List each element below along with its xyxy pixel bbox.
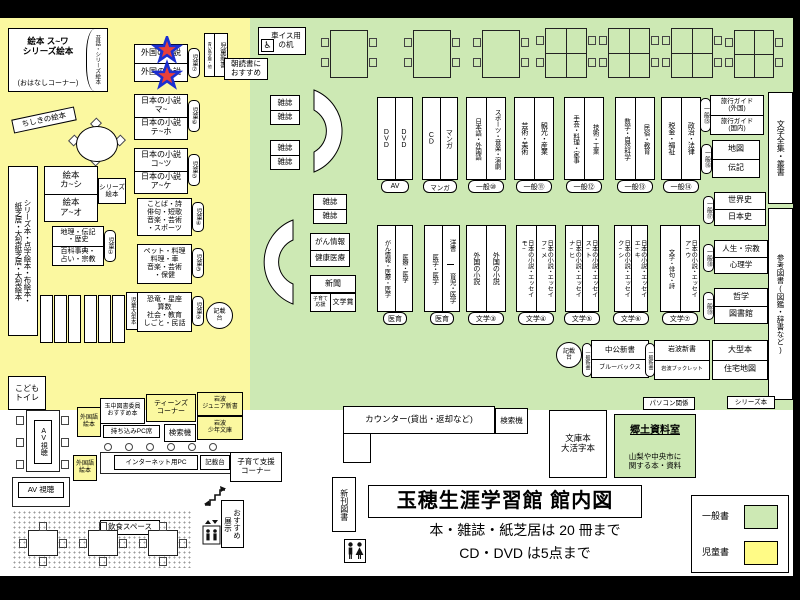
badge-general-17: 一般⑰ <box>703 196 714 224</box>
shelf-col: DVD <box>378 98 395 179</box>
search-kiosk-kids: 検索機 <box>164 424 196 442</box>
magazine-cell: 雑誌 <box>314 209 346 224</box>
shelf-general-13: 数学・自然科学 民俗・教育 <box>615 97 655 180</box>
jp-novels-te-ho: 日本の小説 テ~ホ <box>135 117 187 140</box>
shelf-col: 数学・自然科学 <box>616 98 635 179</box>
shelf-general-12: 手芸・料理・家事 技術・工業 <box>564 97 604 180</box>
kids-badge-4: 児童④ <box>192 202 204 232</box>
shelf-col: マンガ <box>440 98 458 179</box>
chair <box>662 36 670 45</box>
chair <box>16 438 24 447</box>
kids-pet-shelf: ペット・料理 料理・車 音楽・芸術 ・保健 <box>137 244 192 284</box>
shelf-badge-medical-1: 医育 <box>383 312 407 325</box>
stool <box>167 443 175 451</box>
map-cell: 地図 <box>713 141 759 159</box>
chair <box>139 539 147 548</box>
writing-stand-kids: 記載 台 <box>206 302 233 329</box>
health-med-cell: 健康医療 <box>311 250 349 267</box>
bunko-large-print-box: 文庫本 大活字本 <box>549 410 607 478</box>
foreign-picture-books-1: 外国語 絵本 <box>77 407 101 437</box>
shelf-col: 日本の小説・エッセイ ス~ト <box>582 226 599 311</box>
badge-general-19: 一般⑲ <box>703 292 714 320</box>
writing-stand-sw: 記載台 <box>200 455 230 470</box>
shelf-badge-manga: マンガ <box>423 180 457 193</box>
badge-general-16: 一般⑯ <box>701 144 712 174</box>
iwanami-shinsho-cell: 岩波新書 <box>655 341 709 360</box>
shelf-col: 文学・俳句・詩 <box>661 226 680 311</box>
bluebacks-cell: ブルーバックス <box>592 359 648 378</box>
shelf-literature-6: 日本の小説・エッセイ ク~シ 日本の小説・エッセイ エ~キ <box>614 225 648 312</box>
picture-books-ka-shi: 絵本 カ~シ <box>45 167 97 194</box>
chair <box>536 36 544 45</box>
kids-jp-novels-shelf-1: 日本の小説 マ~ 日本の小説 テ~ホ <box>134 94 188 140</box>
shelf-col: 日本の小説・エッセイ モ~ <box>517 226 536 311</box>
badge-general-shinsho-2: 一般新書 <box>582 343 592 377</box>
chair <box>61 416 69 425</box>
kids-dino-shelf: 恐竜・星座 算数 社会・教育 しごと・民話 <box>137 292 192 332</box>
shelf-col: 観光・産業 <box>534 98 554 179</box>
shelf-col: 日本の小説・エッセイ フ~メ <box>536 226 556 311</box>
badge-general-18: 一般⑱ <box>703 244 714 272</box>
geography-shelf: 地理・伝記 ・歴史 百科事典・ 占い・宗教 <box>52 226 104 266</box>
chair <box>369 58 377 67</box>
reading-table-quad <box>608 28 650 78</box>
chair <box>473 58 481 67</box>
world-history-cell: 世界史 <box>715 193 765 209</box>
shelf-av-dvd: DVD DVD <box>377 97 413 180</box>
badge-general-15: 一般⑮ <box>700 98 711 132</box>
jp-novels-a-ke: 日本の小説 ア~ケ <box>135 171 187 194</box>
biography-cell: 伝記 <box>713 159 759 178</box>
shelf-col: 政治・法律 <box>681 98 701 179</box>
magazine-rack-2: 雑誌 雑誌 <box>270 140 300 170</box>
shelf-cd-manga: CD マンガ <box>422 97 458 180</box>
kosodate-bungakusho-rack: 子育て 応援 文学賞 <box>310 293 356 312</box>
chair <box>159 522 167 531</box>
shelf-badge-general-11: 一般⑪ <box>516 180 552 193</box>
chair <box>651 36 659 45</box>
shelf-general-11: 芸術・美術 観光・産業 <box>514 97 554 180</box>
cancer-info-cell: がん情報 <box>311 234 349 250</box>
chair <box>775 58 783 67</box>
chair <box>59 539 67 548</box>
shelf-col: 日本の小説・エッセイ エ~キ <box>631 226 648 311</box>
chair <box>369 38 377 47</box>
chair <box>79 539 87 548</box>
chair <box>775 38 783 47</box>
local-materials-room: 郷土資料室 山梨や中央市に 関する本・資料 <box>614 414 696 478</box>
empty-shelf <box>98 295 111 343</box>
wheelchair-desk-label: 車イス用 の机 <box>271 32 301 49</box>
service-counter-return <box>343 433 371 463</box>
chair <box>452 58 460 67</box>
kids-kotoba-shelf: ことば・詩 俳句・短歌 音楽・芸術 ・スポーツ <box>137 198 192 236</box>
magazine-cell: 雑誌 <box>271 141 299 155</box>
dining-table <box>28 530 58 556</box>
iwanami-shinsho-shelf: 岩波新書 岩波ブックレット <box>654 340 710 380</box>
ohanashi-title: 絵本 ス~ワ シリーズ絵本 <box>11 37 85 57</box>
chair <box>536 58 544 67</box>
shelf-badge-medical-2: 医育 <box>430 312 454 325</box>
shelf-general-10: 日本語・外国語 スポーツ・音楽・演劇 <box>466 97 506 180</box>
new-books-stand: 新刊図書 <box>332 477 356 532</box>
shelf-col: 民俗・教育 <box>635 98 655 179</box>
iwanami-shonen-box: 岩波 少年文庫 <box>197 416 243 440</box>
kids-toilet-box: こども トイレ <box>8 376 46 410</box>
series-books-label: シリーズ本 <box>727 396 775 409</box>
legend-children-label: 児童書 <box>702 547 729 557</box>
iwanami-booklet-cell: 岩波ブックレット <box>655 360 709 380</box>
writing-stand-general: 記載 台 <box>556 342 582 368</box>
shelf-col: 日本の小説・エッセイ ア~ウ <box>680 226 700 311</box>
kids-badge-1: 児童① <box>104 230 116 262</box>
chair <box>61 438 69 447</box>
wheelchair-icon: ♿ <box>261 39 274 52</box>
library-science-cell: 図書館 <box>715 306 767 324</box>
series-ehon-tag: シリーズ 絵本 <box>98 178 126 204</box>
reading-table-quad <box>734 30 774 78</box>
chair <box>19 539 27 548</box>
local-room-title: 郷土資料室 <box>615 415 695 446</box>
badge-general-shinsho-1: 一般新書 <box>645 343 655 377</box>
reading-table-quad <box>671 28 713 78</box>
chair <box>725 58 733 67</box>
shelf-medical-2: 医学・医学 洋書 育児・医学 <box>424 225 460 312</box>
curved-counter-lower <box>252 218 296 306</box>
newspaper-rack: 新聞 <box>310 275 356 293</box>
pc-related-label: パソコン関係 <box>643 397 695 410</box>
stool <box>146 443 154 451</box>
service-counter: カウンター(貸出・返却など) <box>343 406 495 434</box>
dining-table <box>148 530 178 556</box>
shelf-badge-literature-6: 文学⑥ <box>613 312 649 325</box>
shelf-col: がん情報・医療・医学 <box>378 226 395 311</box>
restroom-icon <box>344 539 366 563</box>
chuko-shinsho-shelf: 中公新書 ブルーバックス <box>591 340 649 378</box>
large-books-cell: 大型本 <box>713 341 767 360</box>
reading-table <box>413 30 451 78</box>
shelf-col: CD <box>423 98 440 179</box>
travel-foreign-cell: 旅行ガイド (外国) <box>711 96 763 115</box>
ohanashi-side-label: 昔話・シリーズ絵本 <box>86 29 107 91</box>
legend-general-swatch <box>744 505 778 529</box>
jp-novels-ma: 日本の小説 マ~ <box>135 95 187 117</box>
childcare-support-corner: 子育て支援 コーナー <box>230 452 282 482</box>
chair <box>404 58 412 67</box>
ohanashi-corner-box: 絵本 ス~ワ シリーズ絵本 (おはなしコーナー) 昔話・シリーズ絵本 <box>8 28 108 92</box>
encyclopedia-cell: 百科事典・ 占い・宗教 <box>53 246 103 266</box>
internet-pc-label: インターネット用PC <box>114 455 198 470</box>
shelf-col: 技術・工業 <box>584 98 604 179</box>
reading-table <box>482 30 520 78</box>
shelf-badge-literature-7: 文学⑦ <box>662 312 698 325</box>
chair <box>651 58 659 67</box>
chair <box>39 557 47 566</box>
chair <box>599 36 607 45</box>
stool <box>188 443 196 451</box>
chair <box>404 38 412 47</box>
shelf-literature-7: 文学・俳句・詩 日本の小説・エッセイ ア~ウ <box>660 225 700 312</box>
shelf-badge-literature-3: 文学③ <box>468 312 504 325</box>
shelf-general-14: 税金・福祉 政治・法律 <box>661 97 701 180</box>
life-religion-shelf: 人生・宗教 心理学 <box>714 240 768 274</box>
stool <box>209 443 217 451</box>
shelf-col: 日本の小説・エッセイ ナ~ヒ <box>566 226 582 311</box>
recommend-display-stand: おすすめ 展示 <box>221 500 244 548</box>
chair <box>179 539 187 548</box>
chair <box>99 522 107 531</box>
av-viewing-label-vertical: AV視聴 <box>34 420 52 464</box>
magazine-cell: 雑誌 <box>271 96 299 110</box>
curved-counter-upper <box>311 88 349 174</box>
foreign-picture-books-2: 外国語 絵本 <box>73 455 97 481</box>
travel-domestic-cell: 旅行ガイド (国内) <box>711 115 763 135</box>
empty-shelf <box>54 295 67 343</box>
loan-limit-note-av: CD・DVD は5点まで <box>380 543 670 563</box>
childcare-support-cell: 子育て 応援 <box>311 294 330 311</box>
shelf-badge-general-12: 一般⑫ <box>566 180 602 193</box>
japan-history-cell: 日本史 <box>715 209 765 226</box>
reference-books-strip: 参考図書(図鑑・辞書など) <box>768 208 793 400</box>
chair <box>662 58 670 67</box>
housing-map-cell: 住宅地図 <box>713 360 767 380</box>
western-books-cell: 洋書 <box>447 226 454 264</box>
shelf-col: 手芸・料理・家事 <box>565 98 584 179</box>
search-kiosk-main: 検索機 <box>495 408 528 434</box>
empty-shelf <box>112 295 125 343</box>
round-table <box>76 126 118 162</box>
shelf-literature-4: 日本の小説・エッセイ モ~ 日本の小説・エッセイ フ~メ <box>516 225 556 312</box>
life-religion-cell: 人生・宗教 <box>715 241 767 257</box>
childcare-med-cell: 育児・医学 <box>447 264 454 311</box>
shelf-badge-literature-5: 文学⑤ <box>564 312 600 325</box>
wheelchair-desk-box: 車イス用 の机 ♿ <box>258 27 306 55</box>
shelf-badge-general-13: 一般⑬ <box>617 180 653 193</box>
picture-books-a-o: 絵本 ア~オ <box>45 194 97 222</box>
shelf-col: 外国の小説 <box>486 226 506 311</box>
ohanashi-subtitle: (おはなしコーナー) <box>9 80 87 88</box>
philosophy-cell: 哲学 <box>715 289 767 306</box>
chair <box>119 539 127 548</box>
aoitori-bunko-label: 青い鳥文庫・他 <box>205 34 214 76</box>
chair <box>159 557 167 566</box>
chair <box>521 58 529 67</box>
shelf-col: 日本語・外国語 <box>467 98 486 179</box>
legend-children-swatch <box>744 541 778 565</box>
map-title: 玉穂生涯学習館 館内図 <box>368 485 642 518</box>
philosophy-shelf: 哲学 図書館 <box>714 288 768 324</box>
kids-jp-novels-shelf-2: 日本の小説 コ~ツ 日本の小説 ア~ケ <box>134 148 188 194</box>
chair <box>99 557 107 566</box>
iwanami-junior-box: 岩波 ジュニア新書 <box>197 392 243 416</box>
shelf-medical-1: がん情報・医療・医学 医療・医学 <box>377 225 413 312</box>
chair <box>321 38 329 47</box>
shelf-badge-general-10: 一般⑩ <box>468 180 504 193</box>
chair <box>61 460 69 469</box>
kids-badge-6: 児童⑥ <box>188 100 200 132</box>
magazine-rack-3: 雑誌 雑誌 <box>313 194 347 224</box>
shelf-col: 医療・医学 <box>395 226 413 311</box>
magazine-cell: 雑誌 <box>314 195 346 209</box>
tamachu-recommend-box: 玉中図書委員 おすすめ本 <box>100 398 145 424</box>
loan-limit-note-books: 本・雑誌・紙芝居は 20 冊まで <box>380 520 670 540</box>
shelf-badge-literature-4: 文学④ <box>518 312 554 325</box>
kids-badge-2: 児童② <box>192 296 204 326</box>
chair <box>714 58 722 67</box>
chuko-shinsho-cell: 中公新書 <box>592 341 648 359</box>
cancer-info-rack: がん情報 健康医療 <box>310 233 350 267</box>
shelf-literature-3: 外国の小説 外国の小説 <box>466 225 506 312</box>
shelf-col-split: 洋書 育児・医学 <box>442 226 460 311</box>
history-shelf: 世界史 日本史 <box>714 192 766 226</box>
star-stickers-icon <box>146 36 190 92</box>
empty-shelf <box>68 295 81 343</box>
chair <box>588 36 596 45</box>
shelf-col: 税金・福祉 <box>662 98 681 179</box>
chair <box>725 38 733 47</box>
empty-shelf <box>40 295 53 343</box>
magazine-cell: 雑誌 <box>271 155 299 170</box>
jp-novels-ko-tsu: 日本の小説 コ~ツ <box>135 149 187 171</box>
teens-corner-box: ティーンズ コーナー <box>146 394 196 422</box>
shelf-col: 医学・医学 <box>425 226 442 311</box>
av-viewing-label-2: AV 視聴 <box>18 482 64 498</box>
reading-table-quad <box>545 28 587 78</box>
shelf-col: 外国の小説 <box>467 226 486 311</box>
chair <box>521 38 529 47</box>
shelf-col: 日本の小説・エッセイ ク~シ <box>615 226 631 311</box>
kids-badge-5: 児童⑤ <box>188 154 200 186</box>
kamishibai-strip: シリーズ本・点字絵本・布絵本・ 紙芝居・大型紙芝居・大型絵本 <box>8 166 38 336</box>
magazine-rack-1: 雑誌 雑誌 <box>270 95 300 125</box>
empty-shelf <box>84 295 97 343</box>
shelf-badge-general-14: 一般⑭ <box>663 180 699 193</box>
literary-award-cell: 文学賞 <box>330 294 355 311</box>
kids-badge-3: 児童③ <box>192 248 204 278</box>
shelf-badge-av: AV <box>381 180 409 193</box>
chair <box>588 58 596 67</box>
chair <box>714 36 722 45</box>
chair <box>599 58 607 67</box>
shelf-col: 芸術・美術 <box>515 98 534 179</box>
stool <box>104 443 112 451</box>
elevator-icon <box>201 518 222 546</box>
chair <box>16 460 24 469</box>
library-floor-map-screenshot: { "colors":{"children_area":"#FBF8A0","g… <box>0 0 800 600</box>
stool <box>125 443 133 451</box>
chair <box>321 58 329 67</box>
local-room-subtitle: 山梨や中央市に 関する本・資料 <box>615 446 695 477</box>
psychology-cell: 心理学 <box>715 257 767 274</box>
shelf-col: DVD <box>395 98 413 179</box>
chair <box>452 38 460 47</box>
magazine-cell: 雑誌 <box>271 110 299 125</box>
shelf-literature-5: 日本の小説・エッセイ ナ~ヒ 日本の小説・エッセイ ス~ト <box>565 225 599 312</box>
picture-books-shelf: 絵本 カ~シ 絵本 ア~オ <box>44 166 98 222</box>
map-biography-shelf: 地図 伝記 <box>712 140 760 178</box>
geo-history-cell: 地理・伝記 ・歴史 <box>53 227 103 246</box>
floor-map: 絵本 ス~ワ シリーズ絵本 (おはなしコーナー) 昔話・シリーズ絵本 ちしきの絵… <box>0 18 793 576</box>
legend-box: 一般書 児童書 <box>691 495 789 573</box>
chair <box>473 38 481 47</box>
reading-table <box>330 30 368 78</box>
chair <box>39 522 47 531</box>
travel-guide-shelf: 旅行ガイド (外国) 旅行ガイド (国内) <box>710 95 764 135</box>
byod-pc-seat-box: 持ち込みPC席 <box>103 425 160 438</box>
chair <box>16 416 24 425</box>
legend-general-label: 一般書 <box>702 511 729 521</box>
literature-complete-strip: 文学全集・叢書 <box>768 92 793 204</box>
dining-table <box>88 530 118 556</box>
morning-reading-box: 朝読書に おすすめ <box>224 58 268 80</box>
large-books-shelf: 大型本 住宅地図 <box>712 340 768 380</box>
shelf-col: スポーツ・音楽・演劇 <box>486 98 506 179</box>
